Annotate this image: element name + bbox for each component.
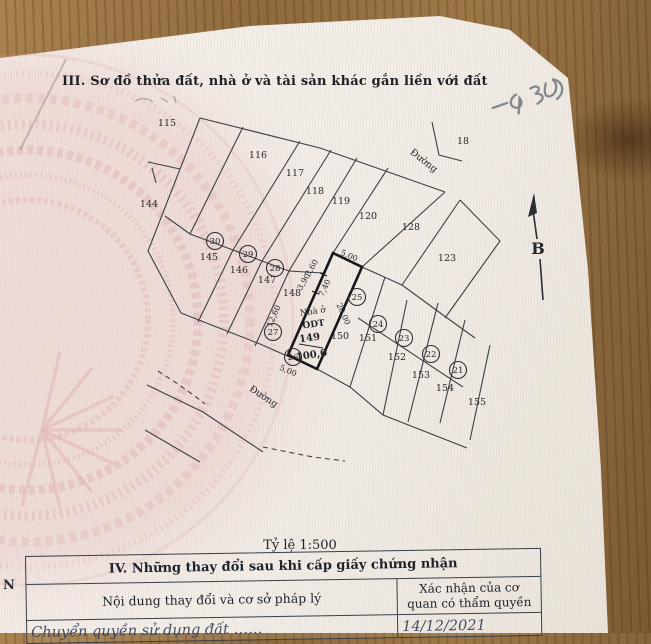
parcel-label-18: 18: [457, 136, 469, 147]
entry-content-handwritten: Chuyển quyền sử dụng đất ……: [27, 615, 397, 643]
dimension-label: 3,60: [303, 258, 320, 278]
lot-circle-label-22: 22: [426, 350, 437, 360]
parcel-label-118: 118: [306, 186, 324, 197]
parcel-label-153: 153: [412, 370, 430, 381]
subject-parcel-use: Nhà ở: [299, 304, 327, 319]
parcel-label-146: 146: [230, 265, 248, 276]
parcel-label-152: 152: [388, 352, 406, 363]
photo-of-land-certificate: { "document": { "section3_title": "III. …: [0, 0, 651, 633]
lot-circle-label-24: 24: [373, 320, 384, 330]
section3-title: III. Sơ đồ thửa đất, nhà ở và tài sản kh…: [62, 74, 492, 89]
road-dashed-line: [263, 447, 345, 461]
parcel-label-150: 150: [331, 331, 349, 342]
road-label: Đường: [408, 147, 440, 175]
road-edge-line: [145, 430, 200, 462]
parcel-label-151: 151: [359, 333, 377, 344]
road-edge-line: [147, 385, 263, 452]
col-header-changes: Nội dung thay đổi và cơ sở pháp lý: [26, 579, 397, 621]
lot-circle-label-25: 25: [352, 293, 363, 303]
lot-circle-label-28: 28: [270, 264, 281, 274]
road-label: Đường: [247, 384, 280, 411]
parcel-label-115: 115: [158, 118, 176, 129]
survey-tick-mark: [148, 162, 180, 183]
parcel-label-117: 117: [286, 168, 304, 179]
col-header-confirmation: Xác nhận của cơ quan có thẩm quyền: [396, 577, 541, 615]
subject-parcel-number: 149: [299, 332, 321, 346]
section4-table: IV. Những thay đổi sau khi cấp giấy chứn…: [25, 548, 542, 644]
dimension-label: 12,60: [265, 304, 283, 329]
parcel-label-120: 120: [359, 211, 377, 222]
subject-parcel-area: 100,0: [295, 348, 328, 363]
parcel-label-123: 123: [438, 253, 456, 264]
parcel-label-144: 144: [140, 199, 158, 210]
parcel-label-128: 128: [402, 222, 420, 233]
parcel-label-116: 116: [249, 150, 267, 161]
parcel-label-155: 155: [468, 397, 486, 408]
lot-circle-label-30: 30: [210, 237, 221, 247]
parcel-label-119: 119: [332, 196, 350, 207]
lot-circle-label-27: 27: [268, 328, 279, 338]
entry-confirmation-handwritten: 14/12/2021: [397, 613, 541, 637]
lot-circle-label-29: 29: [243, 250, 254, 260]
parcel-label-154: 154: [436, 383, 454, 394]
subject-parcel-use-code: ODT: [302, 318, 326, 331]
road-dashed-line: [158, 371, 205, 404]
left-margin-letter: N: [3, 578, 15, 593]
lot-circle-label-21: 21: [453, 366, 464, 376]
north-label: B: [531, 239, 545, 258]
parcel-label-145: 145: [200, 252, 218, 263]
lot-circle-label-23: 23: [399, 334, 410, 344]
